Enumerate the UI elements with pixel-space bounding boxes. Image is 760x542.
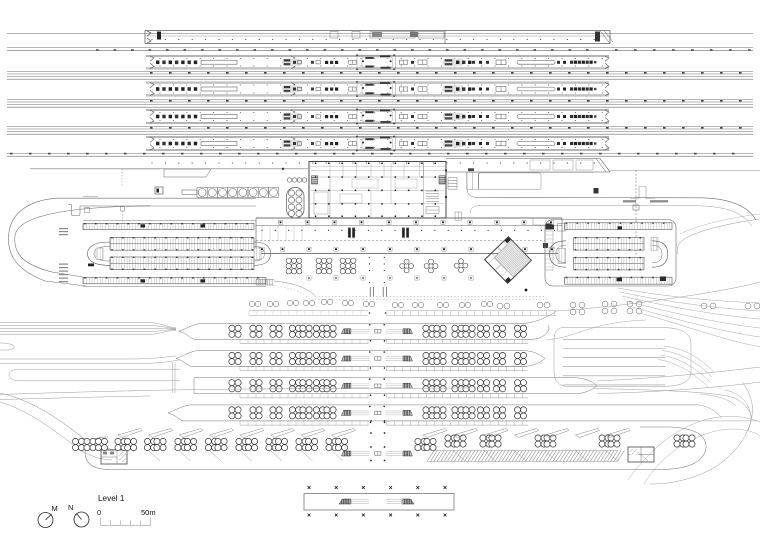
- svg-text:Level 1: Level 1: [98, 494, 125, 503]
- svg-text:50m: 50m: [141, 508, 156, 517]
- svg-text:0: 0: [97, 508, 101, 517]
- svg-text:N: N: [68, 503, 73, 512]
- svg-text:M: M: [52, 504, 58, 513]
